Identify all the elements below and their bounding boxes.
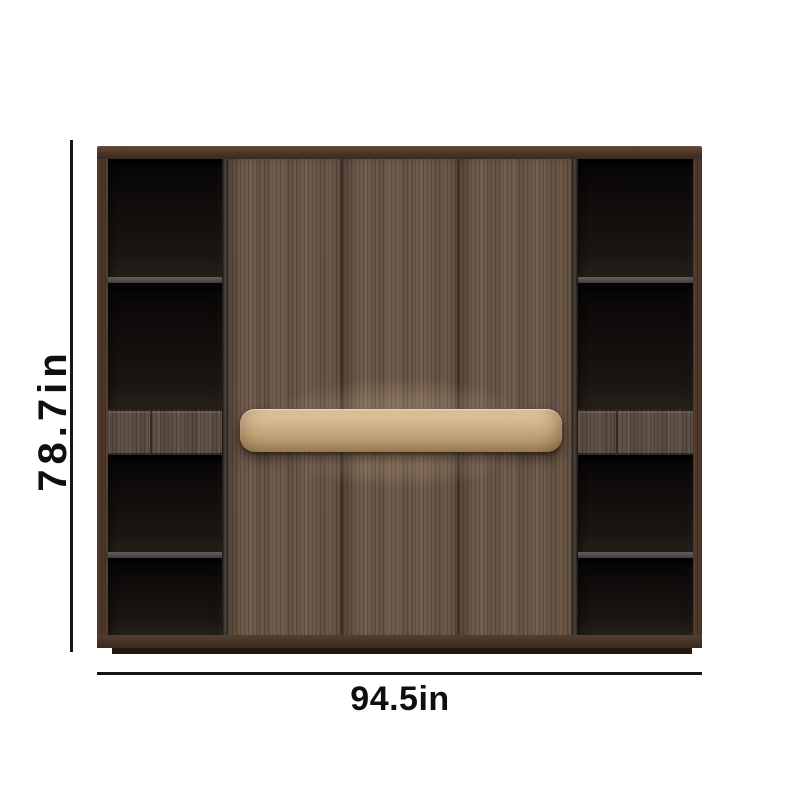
cabinet [97, 146, 702, 654]
open-shelf [578, 558, 693, 635]
drawer-seam [150, 411, 152, 453]
door-panel [341, 159, 456, 640]
door-panel [228, 159, 341, 640]
plinth [112, 648, 692, 654]
open-shelf [108, 283, 222, 409]
height-dimension-label: 78.7in [31, 320, 75, 520]
open-shelf [578, 283, 693, 409]
cabinet-right-frame [693, 159, 702, 640]
width-dimension-label: 94.5in [300, 680, 500, 719]
product-diagram: 78.7in 94.5in [0, 0, 800, 800]
door-panel [457, 159, 572, 640]
cabinet-top-panel [97, 146, 702, 159]
drawer-seam [616, 411, 618, 453]
cabinet-left-frame [97, 159, 108, 635]
width-dimension-line [97, 672, 702, 675]
drawer-front [578, 409, 693, 455]
open-shelf [108, 455, 222, 552]
right-shelf-column [578, 159, 693, 635]
open-shelf [578, 159, 693, 277]
left-shelf-column [108, 159, 222, 635]
open-shelf [108, 558, 222, 635]
door-section [228, 159, 572, 640]
drawer-front [108, 409, 222, 455]
open-shelf [108, 159, 222, 277]
open-shelf [578, 455, 693, 552]
cabinet-bottom-panel [97, 635, 702, 648]
door-handle-bar [240, 409, 562, 452]
